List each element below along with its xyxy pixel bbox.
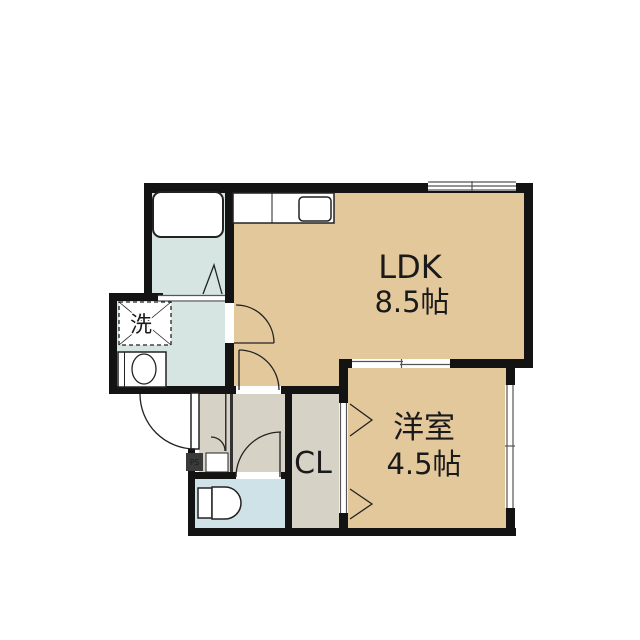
western-room-area: 4.5帖 — [386, 447, 461, 481]
hall-partition-line — [225, 394, 227, 451]
bathtub — [153, 192, 223, 237]
wall-ldk-right — [524, 183, 533, 368]
pipe-space-label: PS — [190, 458, 200, 467]
toilet-bowl — [212, 487, 241, 519]
hall-partition-wall — [230, 394, 233, 472]
western-room-label: 洋室 — [393, 410, 455, 446]
wall-toilet-top-left — [188, 472, 236, 479]
washer-space-label: 洗 — [130, 313, 152, 338]
floor-plan: LDK 8.5帖 洋室 4.5帖 CL 洗 PS — [0, 0, 640, 640]
wall-closet-top — [281, 386, 348, 394]
wall-bottom — [188, 528, 516, 536]
ldk-hall-door-opening — [236, 386, 281, 394]
ldk-label: LDK — [378, 248, 442, 286]
washbasin-bowl — [132, 354, 156, 384]
wall-bath-left — [144, 183, 152, 301]
wall-washroom-top — [109, 293, 163, 301]
ldk-washroom-door-opening — [225, 303, 234, 343]
wall-washroom-left — [109, 293, 117, 394]
wall-hall-closet — [285, 394, 292, 530]
closet-label: CL — [294, 446, 332, 481]
kitchen-sink — [299, 197, 331, 221]
wall-toilet-top-right — [281, 472, 285, 479]
toilet-door-opening — [236, 472, 281, 479]
floor-plan-canvas: LDK 8.5帖 洋室 4.5帖 CL 洗 PS — [0, 0, 640, 640]
ldk-area: 8.5帖 — [374, 285, 449, 319]
entrance-step — [206, 453, 228, 472]
toilet-tank — [198, 488, 212, 518]
entrance-door-swing — [140, 394, 195, 449]
entrance-door-leaf — [191, 393, 199, 449]
wall-ldk-left-lower — [225, 343, 234, 394]
ldk-floor-extension — [234, 359, 339, 386]
